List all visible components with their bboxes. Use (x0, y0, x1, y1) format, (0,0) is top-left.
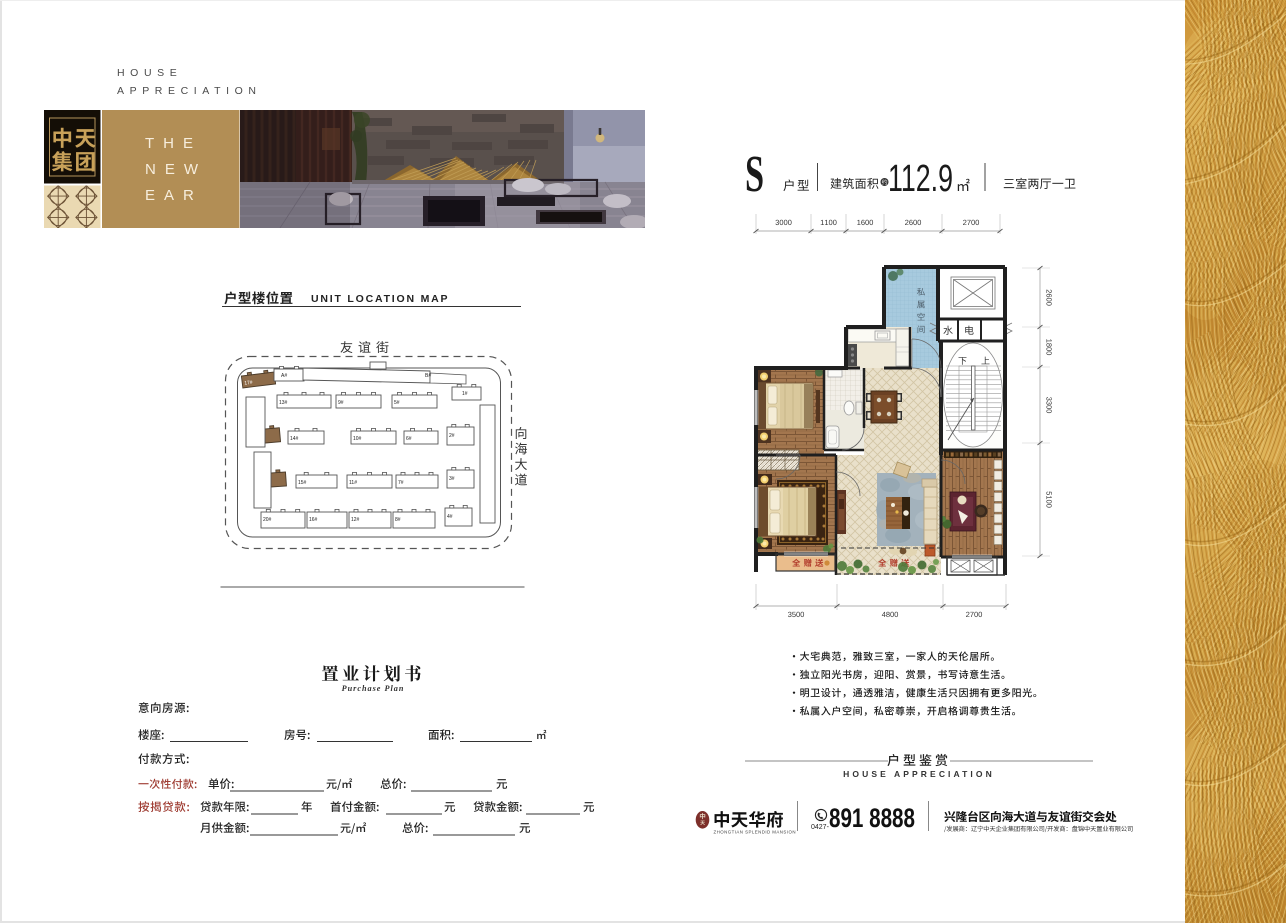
svg-text:11#: 11# (349, 480, 357, 486)
svg-text:NEW: NEW (145, 161, 207, 178)
svg-text:13#: 13# (279, 400, 288, 406)
svg-text:ZHONGTIAN SPLENDID MANSION: ZHONGTIAN SPLENDID MANSION (714, 830, 796, 835)
svg-text:112.9: 112.9 (888, 158, 953, 200)
svg-text:APPRECIATION: APPRECIATION (117, 85, 262, 97)
svg-text:2#: 2# (449, 433, 455, 439)
svg-text:UNIT LOCATION MAP: UNIT LOCATION MAP (311, 293, 449, 305)
svg-text:HOUSE APPRECIATION: HOUSE APPRECIATION (843, 769, 995, 779)
svg-text:HOUSE: HOUSE (117, 67, 182, 79)
svg-text:S: S (745, 145, 764, 203)
svg-text:6#: 6# (406, 436, 412, 442)
svg-text:16#: 16# (309, 517, 318, 523)
svg-text:12#: 12# (351, 517, 360, 523)
svg-text:THE: THE (145, 135, 202, 152)
svg-text:9#: 9# (338, 400, 344, 406)
svg-text:1#: 1# (462, 391, 468, 397)
svg-text:7#: 7# (398, 480, 404, 486)
svg-text:891 8888: 891 8888 (829, 803, 915, 833)
svg-text:B#: B# (425, 373, 431, 379)
svg-text:Purchase Plan: Purchase Plan (342, 684, 405, 693)
svg-text:10#: 10# (353, 436, 362, 442)
svg-text:0427-: 0427- (811, 824, 830, 831)
svg-text:14#: 14# (290, 436, 299, 442)
svg-text:4#: 4# (447, 514, 453, 520)
svg-text:EAR: EAR (145, 187, 203, 204)
svg-text:3#: 3# (449, 476, 455, 482)
svg-text:17#: 17# (244, 380, 253, 387)
svg-text:5#: 5# (394, 400, 400, 406)
svg-text:20#: 20# (263, 517, 272, 523)
svg-text:8#: 8# (395, 517, 401, 523)
svg-text:A#: A# (281, 373, 287, 379)
svg-text:15#: 15# (298, 480, 307, 486)
